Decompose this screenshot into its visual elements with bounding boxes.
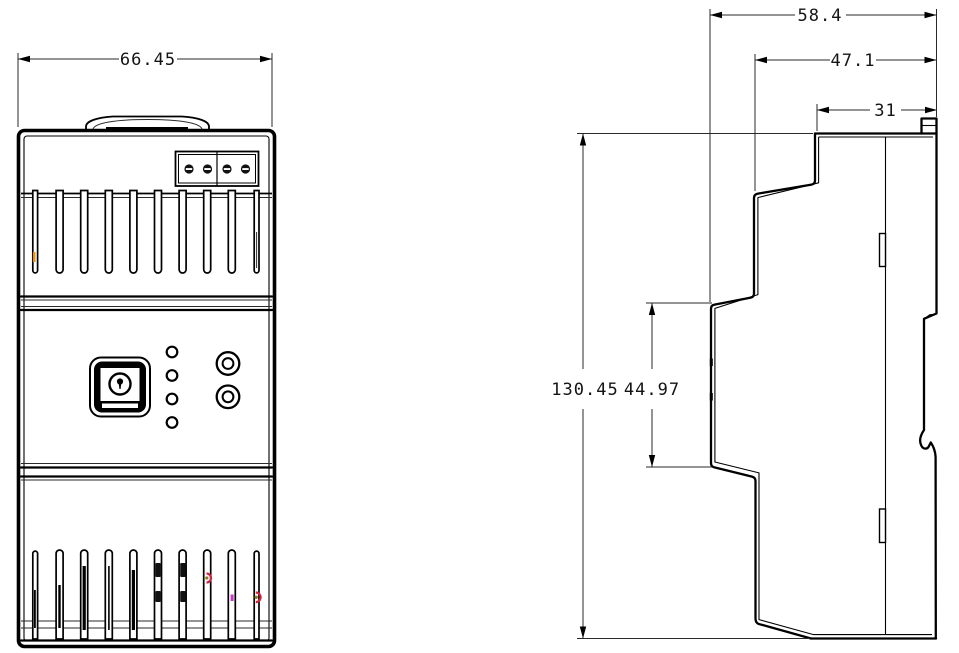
latch-bump-lower xyxy=(880,509,886,543)
dim-side-body-depth: 47.1 xyxy=(755,51,937,191)
dim-label-side-mid-height: 44.97 xyxy=(624,380,680,400)
dim-label-side-front-depth: 31 xyxy=(874,101,896,121)
dim-front-width: 66.45 xyxy=(18,50,272,127)
dim-label-front-width: 66.45 xyxy=(120,50,176,70)
dim-side-front-depth: 31 xyxy=(817,101,937,131)
drawing-page: 66.45 58.4 47.1 31 xyxy=(0,0,959,653)
round-button-upper xyxy=(217,352,240,375)
dim-label-side-total-depth: 58.4 xyxy=(798,6,843,26)
dim-side-total-height: 130.45 xyxy=(551,134,813,639)
led-indicator xyxy=(167,417,178,428)
side-view xyxy=(710,119,937,639)
dim-label-side-body-depth: 47.1 xyxy=(831,51,876,71)
side-profile-outline xyxy=(711,134,815,639)
orange-indicator-mark xyxy=(33,252,36,262)
din-rail-clip-edge xyxy=(920,134,936,639)
front-view xyxy=(19,117,275,647)
engineering-drawing-canvas: 66.45 58.4 47.1 31 xyxy=(0,0,959,653)
face-tick-upper xyxy=(710,359,713,367)
dim-label-side-total-height: 130.45 xyxy=(551,380,618,400)
led-indicator xyxy=(167,370,178,381)
face-tick-lower xyxy=(710,393,713,401)
terminal-block xyxy=(176,152,259,187)
round-button-lower xyxy=(217,386,240,409)
dim-side-mid-height: 44.97 xyxy=(624,303,712,467)
key-switch-button xyxy=(90,358,150,417)
side-top-tab xyxy=(922,119,937,134)
led-indicator xyxy=(167,394,178,405)
latch-bump-upper xyxy=(880,234,886,267)
side-profile-wall-line xyxy=(715,137,932,635)
dim-side-total-depth: 58.4 xyxy=(710,6,937,302)
led-indicator xyxy=(167,347,178,358)
